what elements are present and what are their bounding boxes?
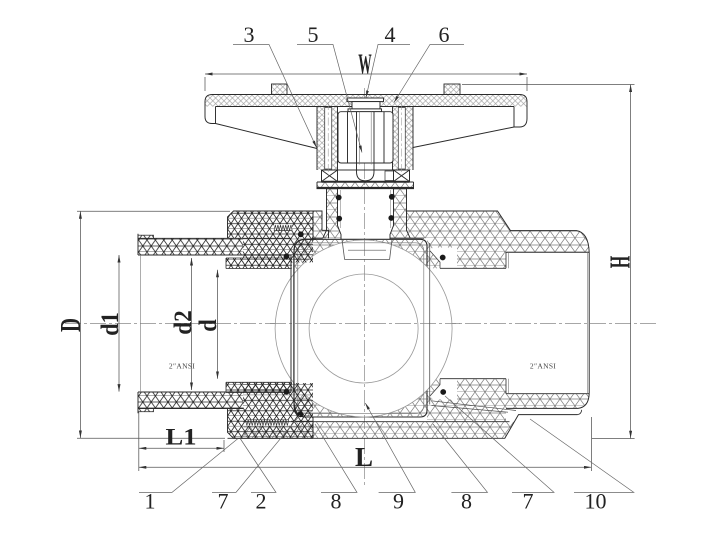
svg-text:L1: L1 — [166, 425, 197, 450]
svg-text:L: L — [355, 442, 373, 472]
svg-text:5: 5 — [308, 22, 319, 47]
svg-text:3: 3 — [244, 22, 255, 47]
svg-text:H: H — [605, 256, 636, 269]
svg-text:D: D — [56, 318, 87, 332]
svg-text:d: d — [195, 319, 222, 332]
svg-text:d2: d2 — [170, 310, 197, 335]
svg-text:4: 4 — [385, 22, 396, 47]
svg-text:2″ANSI: 2″ANSI — [530, 361, 556, 370]
svg-text:W: W — [358, 49, 372, 80]
svg-text:d1: d1 — [97, 312, 124, 336]
svg-text:6: 6 — [439, 22, 450, 47]
